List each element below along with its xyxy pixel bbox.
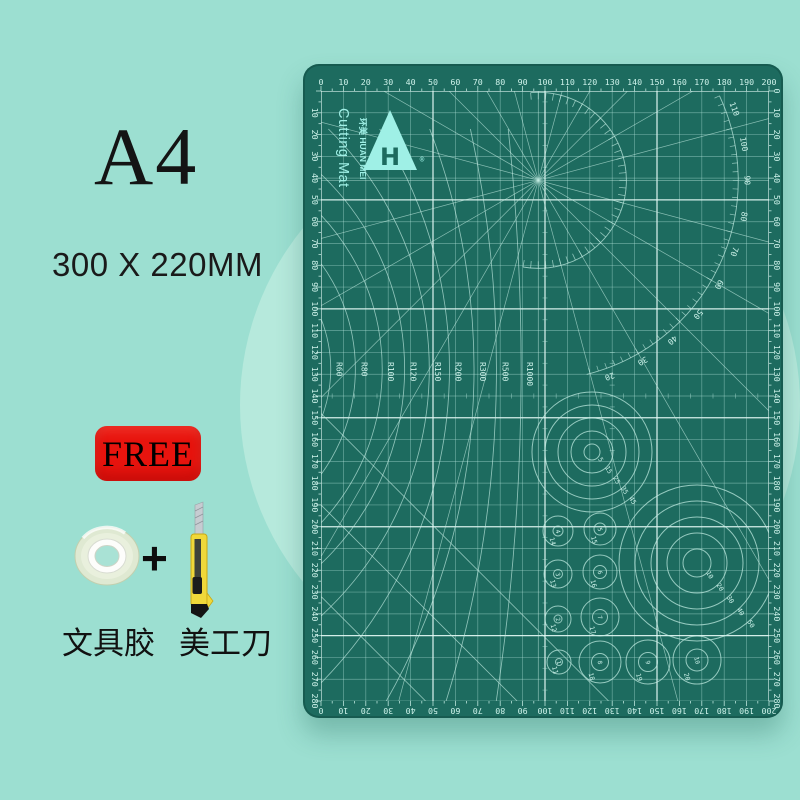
svg-text:100: 100 <box>738 136 749 152</box>
product-image-canvas: { "page": { "bg": "#9cdfd1", "halo": "#b… <box>0 0 800 800</box>
svg-text:30: 30 <box>383 706 393 716</box>
svg-text:60: 60 <box>712 278 725 291</box>
svg-text:90: 90 <box>518 706 528 716</box>
svg-text:110: 110 <box>772 323 782 338</box>
svg-text:50: 50 <box>310 195 320 205</box>
svg-text:R120: R120 <box>409 362 418 381</box>
size-label: A4 <box>94 116 198 198</box>
svg-text:25: 25 <box>611 475 622 486</box>
svg-text:70: 70 <box>310 239 320 249</box>
cutting-mat: 1101009080706050403020R60R80R100R120R150… <box>303 64 783 718</box>
svg-text:100: 100 <box>310 301 320 316</box>
svg-text:20: 20 <box>772 130 782 140</box>
svg-text:10: 10 <box>704 570 715 581</box>
svg-text:40: 40 <box>772 173 782 183</box>
svg-text:0: 0 <box>319 77 324 87</box>
svg-text:60: 60 <box>772 217 782 227</box>
svg-text:230: 230 <box>772 585 782 600</box>
svg-text:R150: R150 <box>433 362 442 381</box>
svg-text:180: 180 <box>717 77 732 87</box>
svg-text:50: 50 <box>772 195 782 205</box>
plus-sign: + <box>141 531 168 585</box>
svg-text:110: 110 <box>310 323 320 338</box>
svg-text:17: 17 <box>588 625 598 635</box>
svg-text:50: 50 <box>428 706 438 716</box>
svg-text:240: 240 <box>772 606 782 621</box>
svg-text:200: 200 <box>762 77 777 87</box>
svg-text:160: 160 <box>672 706 687 716</box>
svg-text:90: 90 <box>310 282 320 292</box>
svg-text:90: 90 <box>772 282 782 292</box>
svg-text:270: 270 <box>772 672 782 687</box>
svg-text:8: 8 <box>596 660 604 666</box>
svg-text:12: 12 <box>549 623 559 633</box>
svg-text:R100: R100 <box>386 362 395 381</box>
svg-text:70: 70 <box>772 239 782 249</box>
cutting-mat-graphic: 1101009080706050403020R60R80R100R120R150… <box>303 64 783 718</box>
svg-text:14: 14 <box>548 536 558 546</box>
svg-text:120: 120 <box>772 345 782 360</box>
gift-labels: 文具胶 美工刀 <box>62 618 272 663</box>
svg-text:40: 40 <box>406 77 416 87</box>
svg-text:10: 10 <box>338 77 348 87</box>
svg-text:4: 4 <box>554 529 562 535</box>
svg-text:60: 60 <box>310 217 320 227</box>
svg-text:280: 280 <box>772 694 782 709</box>
svg-text:160: 160 <box>310 432 320 447</box>
svg-text:150: 150 <box>772 410 782 425</box>
svg-text:50: 50 <box>745 619 756 630</box>
svg-text:150: 150 <box>650 706 665 716</box>
svg-text:190: 190 <box>739 706 754 716</box>
svg-text:10: 10 <box>338 706 348 716</box>
svg-text:19: 19 <box>634 672 644 682</box>
svg-text:5: 5 <box>596 527 604 533</box>
svg-text:180: 180 <box>310 476 320 491</box>
svg-text:140: 140 <box>627 77 642 87</box>
svg-text:30: 30 <box>310 151 320 161</box>
svg-text:30: 30 <box>383 77 393 87</box>
svg-text:110: 110 <box>728 101 741 118</box>
svg-text:80: 80 <box>495 77 505 87</box>
svg-text:190: 190 <box>310 497 320 512</box>
knife-slider <box>193 577 203 594</box>
svg-text:80: 80 <box>738 211 749 222</box>
svg-text:30: 30 <box>725 594 736 605</box>
svg-text:9: 9 <box>644 660 652 666</box>
svg-text:20: 20 <box>715 582 726 593</box>
tape-core-hole <box>95 546 119 567</box>
svg-text:150: 150 <box>310 410 320 425</box>
svg-text:0: 0 <box>772 89 782 94</box>
knife-blade <box>195 502 203 535</box>
svg-text:6: 6 <box>596 570 604 576</box>
svg-text:200: 200 <box>310 519 320 534</box>
svg-text:140: 140 <box>772 389 782 404</box>
svg-text:250: 250 <box>310 628 320 643</box>
tape-label: 文具胶 <box>62 618 155 663</box>
svg-text:140: 140 <box>310 389 320 404</box>
svg-text:180: 180 <box>717 706 732 716</box>
svg-text:13: 13 <box>548 579 558 589</box>
svg-text:10: 10 <box>692 656 701 665</box>
svg-text:H: H <box>380 143 400 171</box>
utility-knife-image <box>182 501 216 621</box>
svg-text:20: 20 <box>310 130 320 140</box>
svg-text:3: 3 <box>554 572 562 578</box>
logo-brand: 环美 HUAN MEI <box>358 118 368 179</box>
svg-text:110: 110 <box>560 706 575 716</box>
free-badge: FREE <box>95 426 201 481</box>
svg-text:®: ® <box>420 155 425 164</box>
svg-text:170: 170 <box>694 706 709 716</box>
svg-text:5: 5 <box>596 456 605 463</box>
knife-end-cap <box>191 604 209 618</box>
svg-text:40: 40 <box>310 173 320 183</box>
knife-label: 美工刀 <box>179 618 272 663</box>
svg-text:260: 260 <box>310 650 320 665</box>
mat-grid-layer: 1101009080706050403020R60R80R100R120R150… <box>303 64 783 718</box>
svg-text:160: 160 <box>672 77 687 87</box>
svg-text:15: 15 <box>589 535 599 545</box>
svg-text:60: 60 <box>450 77 460 87</box>
svg-text:20: 20 <box>603 370 615 382</box>
svg-text:80: 80 <box>495 706 505 716</box>
svg-text:110: 110 <box>560 77 575 87</box>
svg-text:20: 20 <box>361 77 371 87</box>
svg-text:120: 120 <box>310 345 320 360</box>
svg-text:150: 150 <box>650 77 665 87</box>
svg-text:220: 220 <box>772 563 782 578</box>
svg-text:60: 60 <box>450 706 460 716</box>
svg-text:260: 260 <box>772 650 782 665</box>
svg-text:180: 180 <box>772 476 782 491</box>
svg-text:R60: R60 <box>335 362 344 377</box>
dimensions-label: 300 X 220MM <box>52 246 263 284</box>
svg-text:30: 30 <box>636 355 649 368</box>
svg-text:120: 120 <box>582 706 597 716</box>
svg-text:190: 190 <box>739 77 754 87</box>
svg-text:120: 120 <box>582 77 597 87</box>
svg-text:80: 80 <box>772 260 782 270</box>
svg-text:20: 20 <box>361 706 371 716</box>
svg-text:280: 280 <box>310 694 320 709</box>
svg-text:270: 270 <box>310 672 320 687</box>
svg-text:210: 210 <box>772 541 782 556</box>
tape-roll-image <box>73 525 141 587</box>
svg-text:90: 90 <box>742 175 751 185</box>
svg-text:170: 170 <box>310 454 320 469</box>
svg-text:100: 100 <box>538 77 553 87</box>
svg-text:130: 130 <box>310 367 320 382</box>
logo-product-name: Cutting Mat <box>335 108 351 188</box>
svg-text:10: 10 <box>772 108 782 118</box>
svg-text:7: 7 <box>596 615 604 621</box>
svg-text:35: 35 <box>619 485 630 496</box>
svg-text:200: 200 <box>772 519 782 534</box>
svg-text:240: 240 <box>310 606 320 621</box>
svg-text:50: 50 <box>428 77 438 87</box>
svg-text:70: 70 <box>728 246 740 258</box>
svg-text:R1000: R1000 <box>525 362 534 386</box>
svg-text:90: 90 <box>518 77 528 87</box>
svg-text:190: 190 <box>772 497 782 512</box>
svg-text:R80: R80 <box>359 362 368 377</box>
svg-text:70: 70 <box>473 706 483 716</box>
svg-text:80: 80 <box>310 260 320 270</box>
svg-text:210: 210 <box>310 541 320 556</box>
svg-text:250: 250 <box>772 628 782 643</box>
svg-text:160: 160 <box>772 432 782 447</box>
svg-text:100: 100 <box>538 706 553 716</box>
svg-text:220: 220 <box>310 563 320 578</box>
svg-text:30: 30 <box>772 151 782 161</box>
svg-text:170: 170 <box>694 77 709 87</box>
svg-text:40: 40 <box>735 606 746 617</box>
svg-text:40: 40 <box>666 333 679 346</box>
svg-text:R500: R500 <box>500 362 509 381</box>
svg-text:50: 50 <box>691 308 704 321</box>
svg-text:100: 100 <box>772 301 782 316</box>
svg-text:40: 40 <box>406 706 416 716</box>
svg-text:140: 140 <box>627 706 642 716</box>
svg-text:130: 130 <box>772 367 782 382</box>
svg-text:R300: R300 <box>478 362 487 381</box>
svg-text:170: 170 <box>772 454 782 469</box>
svg-text:230: 230 <box>310 585 320 600</box>
svg-text:10: 10 <box>310 108 320 118</box>
svg-text:130: 130 <box>605 77 620 87</box>
svg-text:R200: R200 <box>453 362 462 381</box>
svg-text:45: 45 <box>627 495 638 506</box>
svg-text:70: 70 <box>473 77 483 87</box>
svg-text:130: 130 <box>605 706 620 716</box>
